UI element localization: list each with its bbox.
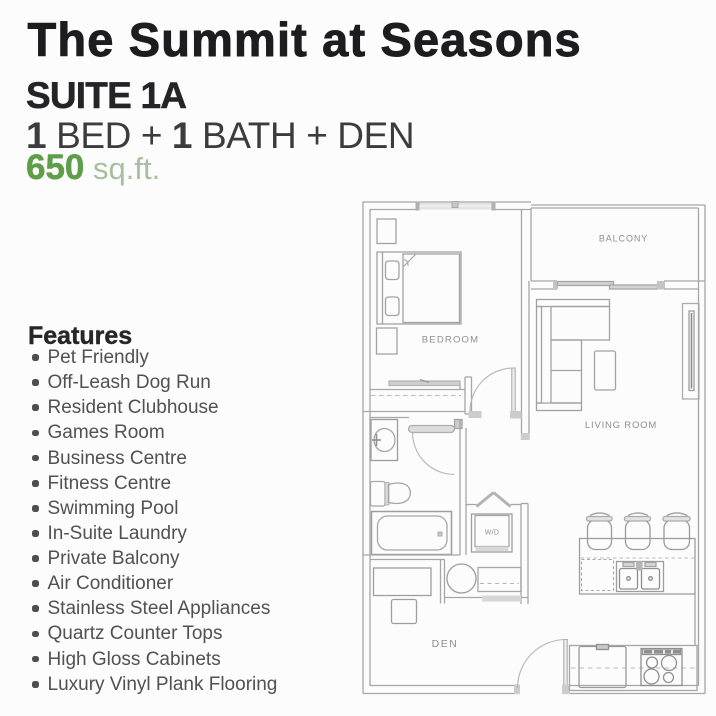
svg-text:W/D: W/D	[485, 530, 500, 537]
svg-text:BEDROOM: BEDROOM	[422, 335, 480, 346]
svg-text:DEN: DEN	[432, 638, 459, 650]
svg-text:BALCONY: BALCONY	[599, 234, 648, 244]
svg-text:LIVING ROOM: LIVING ROOM	[585, 420, 657, 431]
